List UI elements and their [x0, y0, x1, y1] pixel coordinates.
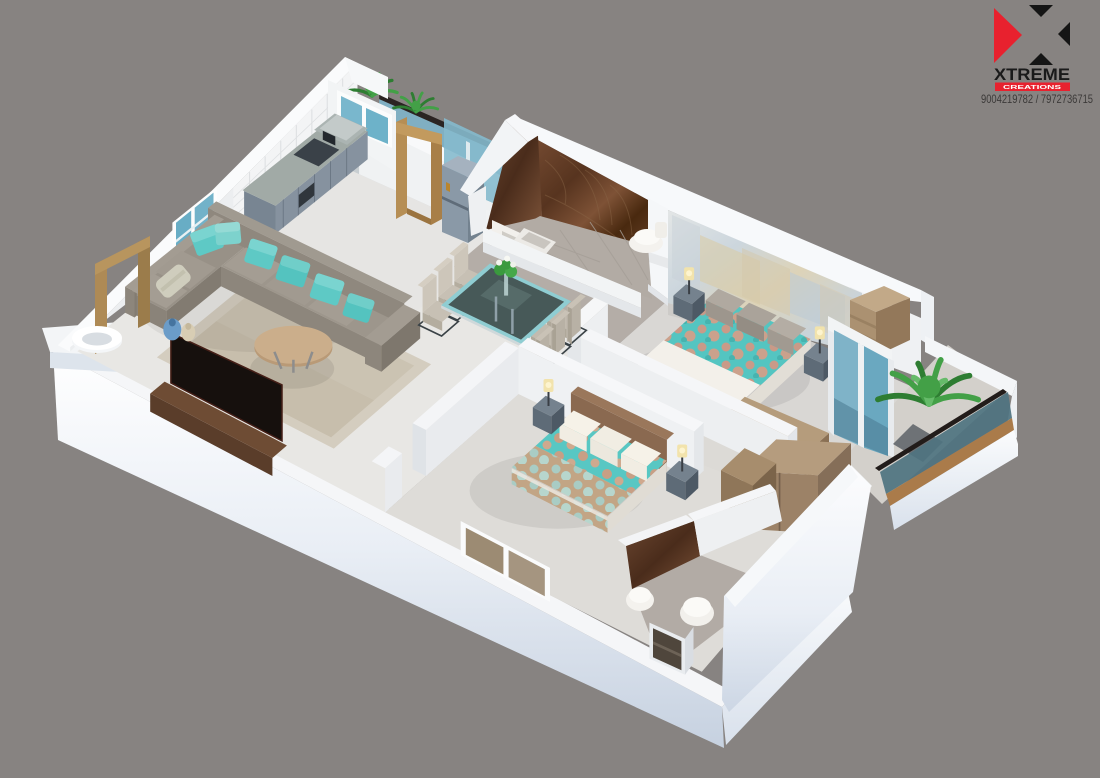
svg-text:XTREME: XTREME [994, 65, 1070, 84]
svg-text:9004219782 / 7972736715: 9004219782 / 7972736715 [981, 92, 1093, 106]
svg-text:CREATIONS: CREATIONS [1003, 85, 1061, 91]
